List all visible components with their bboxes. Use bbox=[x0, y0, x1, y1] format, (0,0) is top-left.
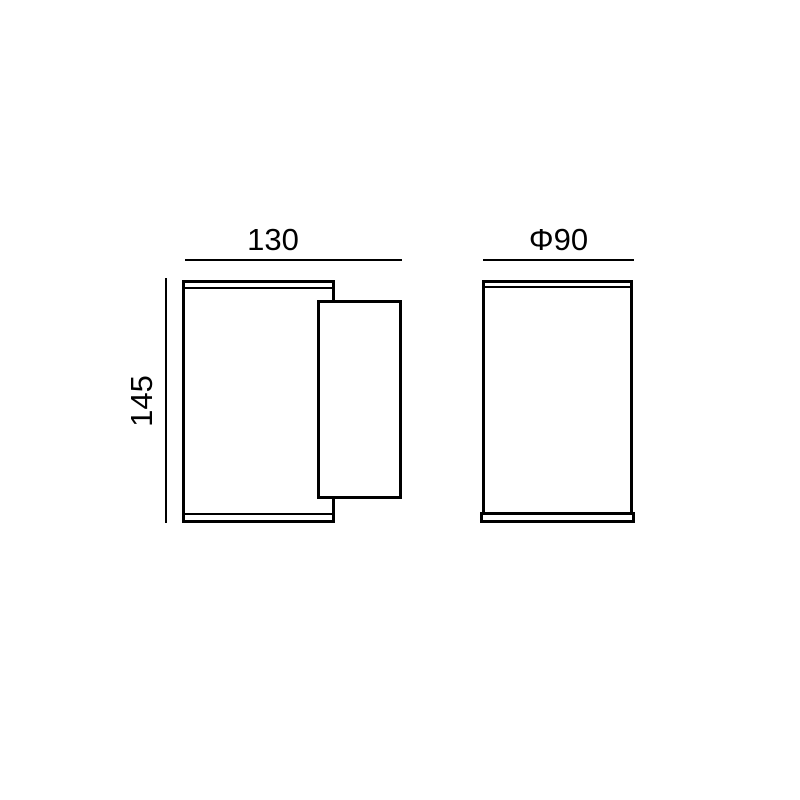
mounting-bracket-rect bbox=[317, 300, 402, 499]
front-bottom-cap-rect bbox=[480, 512, 635, 523]
front-top-cap-line bbox=[485, 286, 630, 288]
diameter-dimension-label: Φ90 bbox=[483, 223, 634, 256]
diameter-dimension-line bbox=[483, 259, 634, 261]
side-top-cap-line bbox=[185, 287, 332, 289]
width-dimension-line bbox=[185, 259, 402, 261]
technical-drawing: 130 145 Φ90 bbox=[0, 0, 800, 800]
fixture-body-side-rect bbox=[182, 280, 335, 523]
side-bottom-cap-line bbox=[185, 513, 332, 515]
fixture-body-front-rect bbox=[482, 280, 633, 523]
height-dimension-label: 145 bbox=[125, 321, 159, 481]
width-dimension-label: 130 bbox=[163, 223, 383, 256]
height-dimension-line bbox=[165, 278, 167, 523]
